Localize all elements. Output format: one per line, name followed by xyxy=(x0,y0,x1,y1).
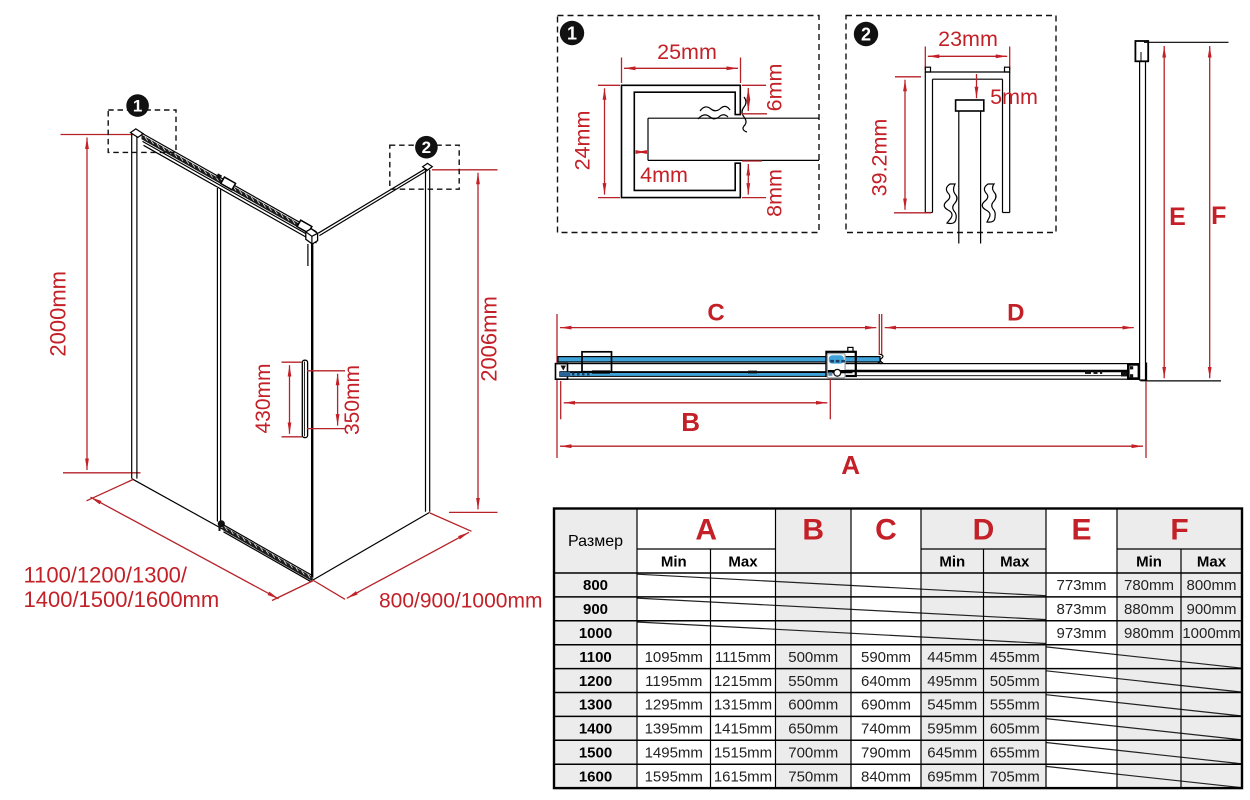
svg-text:1500: 1500 xyxy=(579,745,612,762)
svg-text:1400/1500/1600mm: 1400/1500/1600mm xyxy=(24,587,220,612)
svg-text:980mm: 980mm xyxy=(1124,625,1174,642)
svg-text:695mm: 695mm xyxy=(927,768,977,785)
svg-text:445mm: 445mm xyxy=(927,649,977,666)
svg-text:800mm: 800mm xyxy=(1186,577,1236,594)
svg-text:550mm: 550mm xyxy=(788,673,838,690)
svg-text:495mm: 495mm xyxy=(927,673,977,690)
svg-text:1: 1 xyxy=(567,24,577,44)
svg-text:973mm: 973mm xyxy=(1056,625,1106,642)
svg-text:1595mm: 1595mm xyxy=(645,768,703,785)
svg-text:1195mm: 1195mm xyxy=(645,673,702,690)
svg-text:740mm: 740mm xyxy=(861,721,911,738)
svg-text:780mm: 780mm xyxy=(1124,577,1174,594)
svg-text:25mm: 25mm xyxy=(657,40,717,64)
svg-text:2: 2 xyxy=(422,138,431,157)
svg-text:6mm: 6mm xyxy=(763,64,787,112)
svg-text:1200: 1200 xyxy=(579,673,612,690)
svg-text:Max: Max xyxy=(1000,554,1030,571)
svg-text:39.2mm: 39.2mm xyxy=(868,119,892,197)
svg-text:605mm: 605mm xyxy=(990,721,1040,738)
svg-text:24mm: 24mm xyxy=(571,111,595,171)
svg-text:2: 2 xyxy=(861,25,871,45)
svg-text:5mm: 5mm xyxy=(990,85,1038,109)
svg-text:505mm: 505mm xyxy=(990,673,1040,690)
svg-text:Min: Min xyxy=(1136,554,1162,571)
svg-text:1100/1200/1300/: 1100/1200/1300/ xyxy=(24,563,188,588)
svg-text:1295mm: 1295mm xyxy=(645,697,703,714)
svg-text:640mm: 640mm xyxy=(861,673,911,690)
svg-text:900: 900 xyxy=(583,601,608,618)
svg-text:Max: Max xyxy=(728,554,758,571)
svg-text:F: F xyxy=(1211,202,1226,230)
svg-text:F: F xyxy=(1170,514,1188,547)
svg-text:1000: 1000 xyxy=(579,625,612,642)
svg-text:2006mm: 2006mm xyxy=(477,296,502,382)
svg-text:1600: 1600 xyxy=(579,768,612,785)
svg-text:Min: Min xyxy=(661,554,687,571)
svg-text:430mm: 430mm xyxy=(252,363,275,433)
svg-text:8mm: 8mm xyxy=(763,169,787,217)
svg-text:1395mm: 1395mm xyxy=(645,721,703,738)
svg-text:590mm: 590mm xyxy=(861,649,911,666)
svg-text:350mm: 350mm xyxy=(341,365,364,435)
svg-text:650mm: 650mm xyxy=(788,721,838,738)
svg-text:C: C xyxy=(707,300,724,327)
svg-text:790mm: 790mm xyxy=(861,745,911,762)
svg-text:873mm: 873mm xyxy=(1056,601,1106,618)
svg-text:1300: 1300 xyxy=(579,697,612,714)
svg-text:1495mm: 1495mm xyxy=(645,745,703,762)
svg-text:4mm: 4mm xyxy=(640,163,688,187)
svg-text:455mm: 455mm xyxy=(990,649,1040,666)
svg-text:700mm: 700mm xyxy=(788,745,838,762)
svg-text:840mm: 840mm xyxy=(861,768,911,785)
svg-text:B: B xyxy=(681,407,700,437)
svg-text:Min: Min xyxy=(939,554,965,571)
svg-text:750mm: 750mm xyxy=(788,768,838,785)
svg-text:555mm: 555mm xyxy=(990,697,1040,714)
svg-text:E: E xyxy=(1169,203,1186,231)
svg-text:600mm: 600mm xyxy=(788,697,838,714)
svg-text:1: 1 xyxy=(133,97,142,116)
svg-text:Max: Max xyxy=(1197,554,1227,571)
svg-text:645mm: 645mm xyxy=(927,745,977,762)
svg-text:900mm: 900mm xyxy=(1186,601,1236,618)
svg-text:690mm: 690mm xyxy=(861,697,911,714)
svg-text:2000mm: 2000mm xyxy=(46,271,71,357)
svg-text:D: D xyxy=(1007,300,1024,327)
svg-text:800/900/1000mm: 800/900/1000mm xyxy=(379,590,542,613)
svg-text:800: 800 xyxy=(583,577,608,594)
svg-text:A: A xyxy=(695,514,717,547)
svg-text:1095mm: 1095mm xyxy=(645,649,703,666)
svg-text:E: E xyxy=(1071,514,1091,547)
svg-text:C: C xyxy=(875,514,897,547)
svg-text:D: D xyxy=(973,514,995,547)
svg-text:1415mm: 1415mm xyxy=(714,721,772,738)
svg-text:1115mm: 1115mm xyxy=(715,649,771,666)
svg-text:A: A xyxy=(841,450,860,480)
svg-text:595mm: 595mm xyxy=(927,721,977,738)
svg-text:1615mm: 1615mm xyxy=(714,768,772,785)
svg-text:B: B xyxy=(802,514,824,547)
svg-text:23mm: 23mm xyxy=(938,27,998,51)
svg-text:705mm: 705mm xyxy=(990,768,1040,785)
svg-text:1000mm: 1000mm xyxy=(1182,625,1240,642)
svg-text:773mm: 773mm xyxy=(1056,577,1106,594)
svg-text:Размер: Размер xyxy=(568,533,623,550)
svg-text:1515mm: 1515mm xyxy=(714,745,772,762)
svg-text:500mm: 500mm xyxy=(788,649,838,666)
svg-text:545mm: 545mm xyxy=(927,697,977,714)
svg-text:1400: 1400 xyxy=(579,721,612,738)
svg-text:880mm: 880mm xyxy=(1124,601,1174,618)
svg-text:1100: 1100 xyxy=(579,649,612,666)
svg-text:1315mm: 1315mm xyxy=(714,697,772,714)
svg-text:1215mm: 1215mm xyxy=(714,673,772,690)
svg-text:655mm: 655mm xyxy=(990,745,1040,762)
